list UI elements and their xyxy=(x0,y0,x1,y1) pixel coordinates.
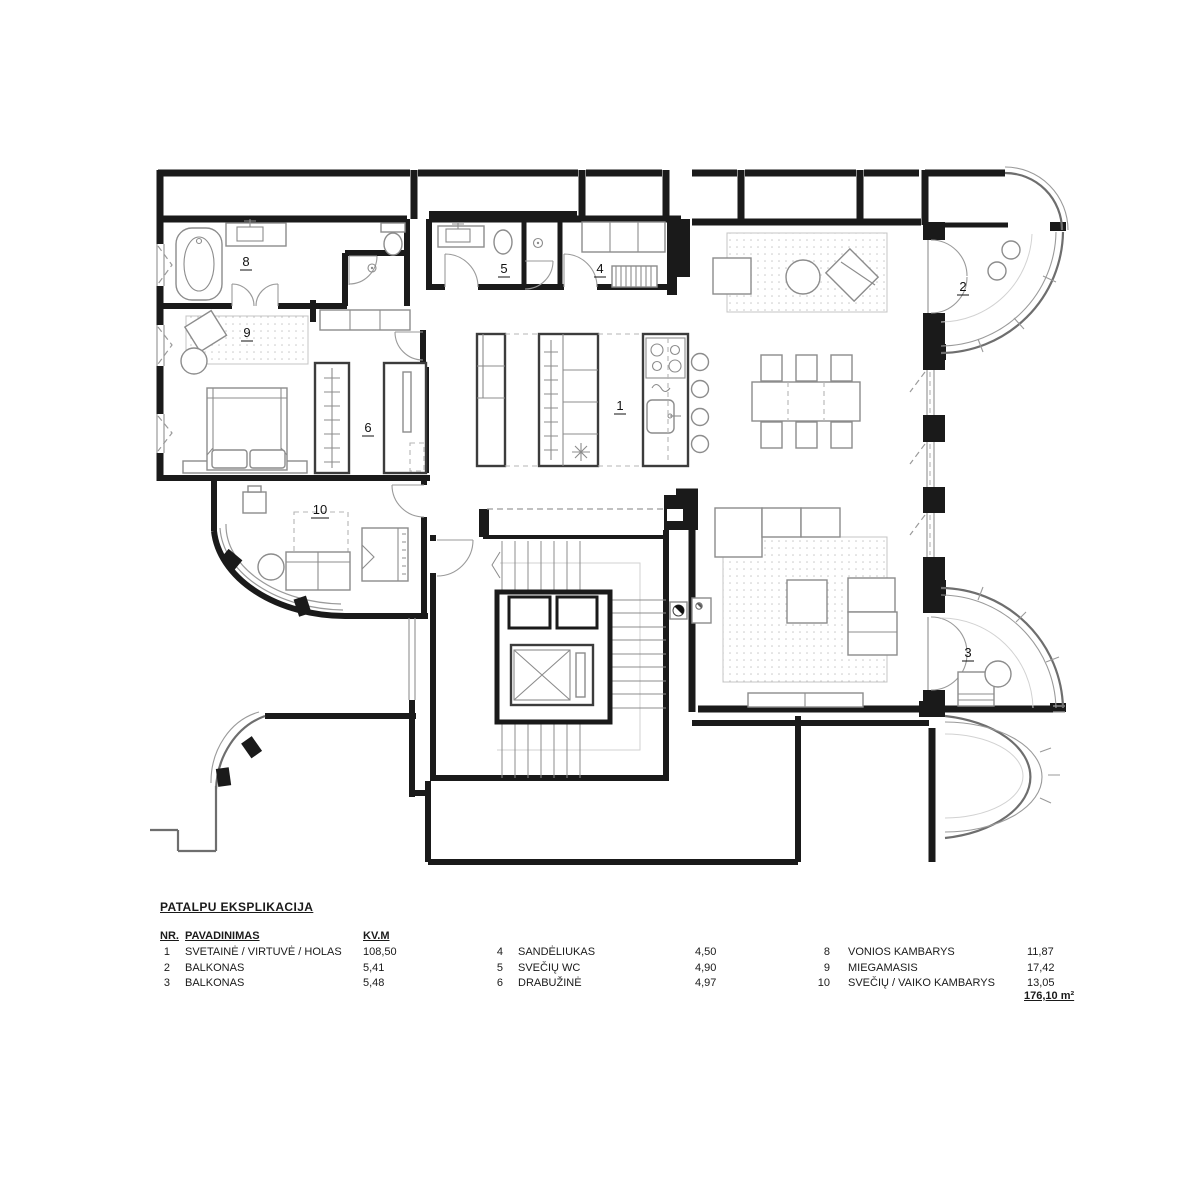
legend-total-area: 176,10 m² xyxy=(1024,989,1074,1005)
legend-row-area: 17,42 xyxy=(1027,961,1055,977)
floor-plan-sheet: 1 2 3 4 5 6 8 9 10 PATALPU EKSPLIKACIJA … xyxy=(0,0,1200,1200)
room-label-living: 1 xyxy=(616,398,623,413)
room-label-balcony-2: 2 xyxy=(959,279,966,294)
legend-row: 6 DRABUŽINĖ 4,97 xyxy=(485,976,503,992)
legend-title: PATALPU EKSPLIKACIJA xyxy=(160,900,313,916)
wardrobe-furniture xyxy=(315,310,426,473)
legend-row-nr: 4 xyxy=(485,945,503,961)
legend-header-area: KV.M xyxy=(363,929,390,945)
room-label-storage: 4 xyxy=(596,261,603,276)
legend-row: 9 MIEGAMASIS 17,42 xyxy=(812,961,830,977)
legend-row: 1 SVETAINĖ / VIRTUVĖ / HOLAS 108,50 xyxy=(152,945,170,961)
legend-row: 5 SVEČIŲ WC 4,90 xyxy=(485,961,503,977)
legend-row-nr: 10 xyxy=(812,976,830,992)
kitchen-furniture xyxy=(477,334,860,466)
legend-row-nr: 9 xyxy=(812,961,830,977)
legend-header-name: PAVADINIMAS xyxy=(185,929,260,945)
legend-row: 10 SVEČIŲ / VAIKO KAMBARYS 13,05 xyxy=(812,976,830,992)
legend-column-3: 8 VONIOS KAMBARYS 11,87 9 MIEGAMASIS 17,… xyxy=(812,945,830,992)
legend-row-name: SVETAINĖ / VIRTUVĖ / HOLAS xyxy=(185,945,342,961)
legend-row-name: BALKONAS xyxy=(185,961,244,977)
legend-row-name: SVEČIŲ WC xyxy=(518,961,580,977)
room-label-guest-wc: 5 xyxy=(500,261,507,276)
legend-row-nr: 8 xyxy=(812,945,830,961)
legend-row-area: 5,48 xyxy=(363,976,384,992)
legend-row: 8 VONIOS KAMBARYS 11,87 xyxy=(812,945,830,961)
legend-header-nr: NR. xyxy=(160,929,179,945)
stairwell xyxy=(487,509,711,778)
legend-row-name: SANDĖLIUKAS xyxy=(518,945,595,961)
room-label-guest-room: 10 xyxy=(313,502,327,517)
room-label-wardrobe: 6 xyxy=(364,420,371,435)
legend-row-nr: 5 xyxy=(485,961,503,977)
legend-row-area: 5,41 xyxy=(363,961,384,977)
legend-row-nr: 6 xyxy=(485,976,503,992)
legend-row-area: 4,97 xyxy=(695,976,716,992)
floor-plan-drawing: 1 2 3 4 5 6 8 9 10 xyxy=(0,0,1200,1200)
legend-row: 2 BALKONAS 5,41 xyxy=(152,961,170,977)
legend-row-nr: 1 xyxy=(152,945,170,961)
legend-column-1: 1 SVETAINĖ / VIRTUVĖ / HOLAS 108,50 2 BA… xyxy=(152,945,170,992)
legend-row-name: MIEGAMASIS xyxy=(848,961,918,977)
legend-row-nr: 3 xyxy=(152,976,170,992)
legend-row-area: 108,50 xyxy=(363,945,397,961)
living-furniture xyxy=(713,233,897,707)
legend-row-name: BALKONAS xyxy=(185,976,244,992)
legend-row-area: 11,87 xyxy=(1027,945,1054,961)
legend-row-name: VONIOS KAMBARYS xyxy=(848,945,955,961)
legend-row: 3 BALKONAS 5,48 xyxy=(152,976,170,992)
room-label-bathroom: 8 xyxy=(242,254,249,269)
legend-row-area: 4,50 xyxy=(695,945,716,961)
legend-row-area: 4,90 xyxy=(695,961,716,977)
room-label-bedroom: 9 xyxy=(243,325,250,340)
legend-row-name: DRABUŽINĖ xyxy=(518,976,582,992)
legend-column-2: 4 SANDĖLIUKAS 4,50 5 SVEČIŲ WC 4,90 6 DR… xyxy=(485,945,503,992)
room-label-balcony-3: 3 xyxy=(964,645,971,660)
legend-row-nr: 2 xyxy=(152,961,170,977)
bathroom-fixtures xyxy=(176,219,405,300)
balcony-3 xyxy=(941,587,1063,708)
legend-row-name: SVEČIŲ / VAIKO KAMBARYS xyxy=(848,976,995,992)
wc-storage-fixtures xyxy=(438,222,665,287)
legend-row: 4 SANDĖLIUKAS 4,50 xyxy=(485,945,503,961)
